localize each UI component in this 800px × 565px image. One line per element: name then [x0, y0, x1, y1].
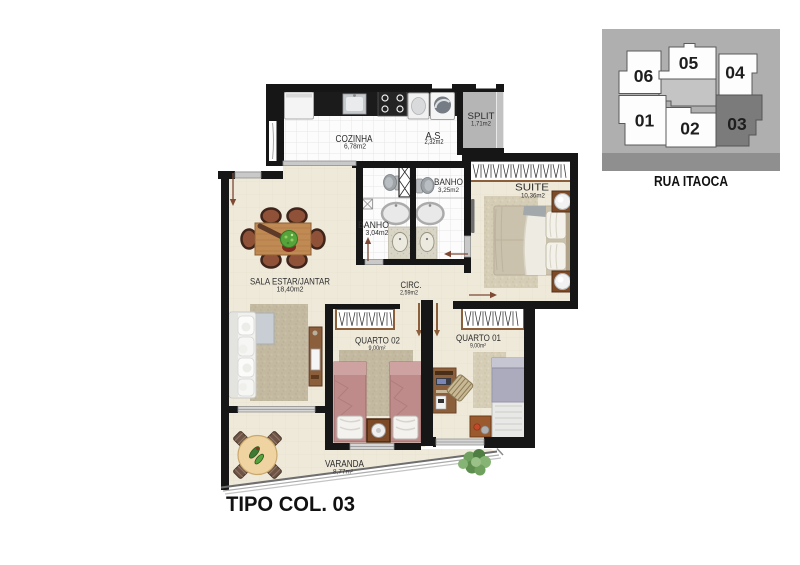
svg-text:9,00m²: 9,00m²	[369, 345, 387, 352]
svg-text:04: 04	[725, 63, 745, 83]
svg-text:CIRC.: CIRC.	[401, 280, 422, 290]
svg-text:6,78m2: 6,78m2	[344, 144, 366, 151]
svg-text:3,04m2: 3,04m2	[366, 230, 389, 237]
svg-text:BANHO: BANHO	[434, 177, 463, 187]
svg-text:18,40m2: 18,40m2	[277, 287, 304, 294]
svg-text:2,32m2: 2,32m2	[425, 139, 444, 146]
svg-text:01: 01	[635, 111, 655, 131]
svg-text:06: 06	[634, 66, 654, 86]
svg-text:2,59m2: 2,59m2	[400, 290, 418, 297]
svg-text:1,71m2: 1,71m2	[471, 121, 491, 128]
svg-text:SALA ESTAR/JANTAR: SALA ESTAR/JANTAR	[250, 277, 330, 287]
svg-text:05: 05	[679, 53, 699, 73]
svg-text:9,00m²: 9,00m²	[470, 343, 487, 350]
svg-text:10,36m2: 10,36m2	[521, 193, 545, 200]
svg-text:TIPO COL. 03: TIPO COL. 03	[226, 492, 355, 516]
svg-text:RUA ITAOCA: RUA ITAOCA	[654, 173, 728, 190]
svg-text:02: 02	[680, 119, 700, 139]
svg-text:03: 03	[727, 114, 747, 134]
svg-text:8,77m²: 8,77m²	[333, 469, 354, 476]
svg-text:3,25m2: 3,25m2	[438, 187, 459, 194]
